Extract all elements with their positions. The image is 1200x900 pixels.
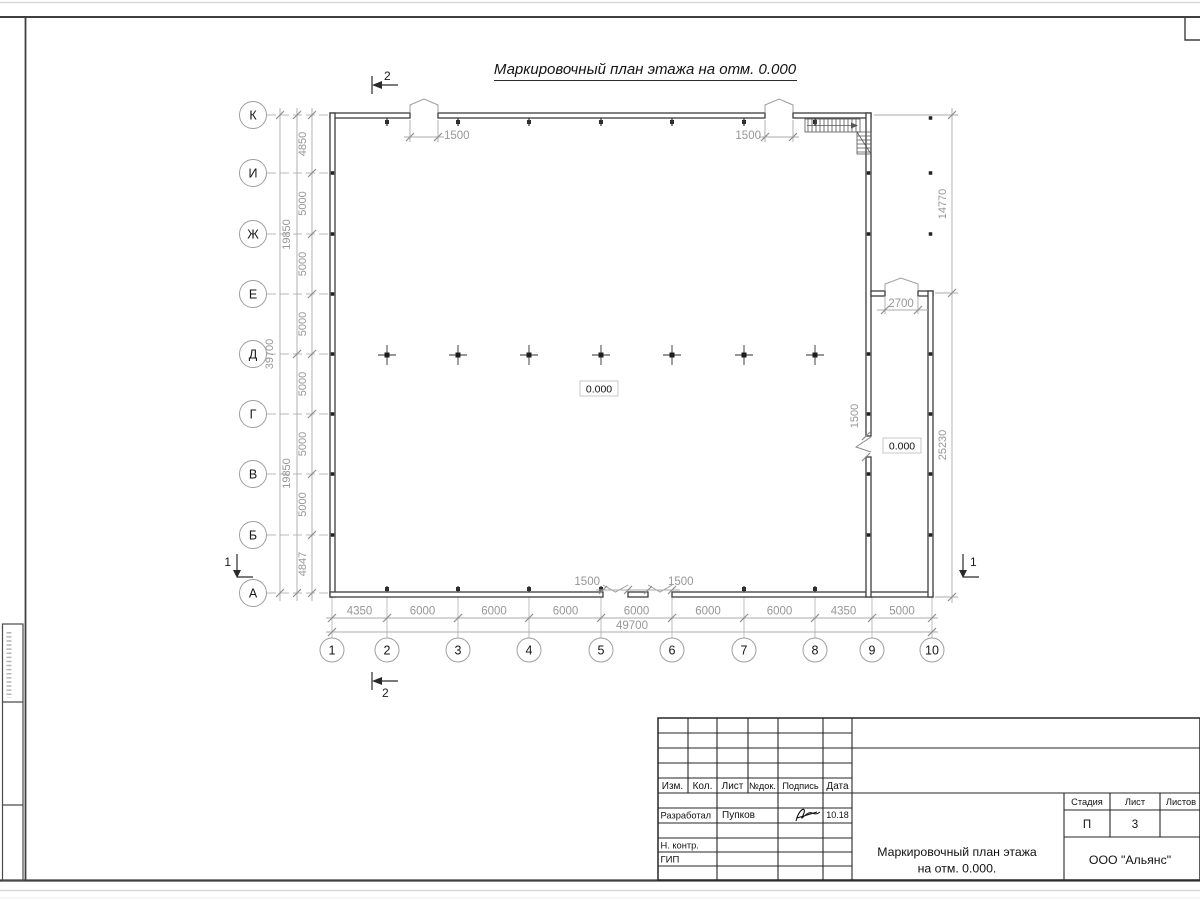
gate-symbol-top-right (765, 99, 793, 112)
level-annex: 0.000 (889, 441, 915, 453)
floor-plan-drawing: Маркировочный план этажа на отм. 0.000 4… (0, 0, 1200, 900)
tb-col-data: Дата (826, 781, 849, 792)
dimension-chains (276, 108, 958, 636)
frame-side-column (3, 624, 24, 881)
walls (330, 113, 933, 597)
axis-row-2: Ж (247, 228, 259, 242)
wall-bottom-1 (330, 592, 603, 597)
frame-corner-box (1185, 17, 1200, 40)
drawing-sheet: Маркировочный план этажа на отм. 0.000 4… (0, 0, 1200, 900)
dim-right-bottom: 25230 (937, 430, 949, 461)
dim-bottom-8: 5000 (889, 606, 915, 618)
tb-gip-label: ГИП (661, 855, 680, 866)
axis-col-2: 3 (455, 644, 462, 658)
dim-left-2: 5000 (297, 252, 309, 276)
dim-gate-bottom-left: 1500 (574, 576, 600, 588)
section-2-bottom-label: 2 (382, 686, 389, 700)
interior-columns (378, 345, 824, 365)
gate-symbol-top-left (410, 99, 438, 112)
dim-left-mid-1: 19850 (281, 458, 293, 489)
tb-doc-title-1: Маркировочный план этажа (877, 845, 1037, 859)
dim-annex-gate: 2700 (888, 298, 914, 310)
dim-bottom-3: 6000 (553, 606, 579, 618)
wall-bottom-3 (672, 592, 933, 597)
dim-left-7: 4847 (297, 552, 309, 576)
tb-col-kol: Кол. (693, 781, 713, 792)
section-1-right-label: 1 (970, 555, 977, 569)
wall-top-3 (793, 113, 871, 118)
dim-bottom-7: 4350 (831, 606, 857, 618)
page-title: Маркировочный план этажа на отм. 0.000 (494, 61, 797, 78)
dim-bottom-0: 4350 (347, 606, 373, 618)
dim-bottom-5: 6000 (695, 606, 721, 618)
wall-top-1 (330, 113, 410, 118)
tb-developed-date: 10.18 (826, 810, 849, 820)
axis-bubbles-bottom: 1 2 3 4 5 6 7 8 9 10 (320, 638, 944, 662)
axis-row-0: К (249, 109, 257, 123)
dim-gate-top-left: 1500 (444, 130, 470, 142)
wall-top-2 (438, 113, 765, 118)
axis-bubbles-left: К И Ж Е Д Г В Б А (240, 102, 267, 607)
dim-left-1: 5000 (297, 191, 309, 215)
dim-texts-right: 14770 25230 (937, 189, 949, 461)
dim-left-6: 5000 (297, 492, 309, 516)
tb-developed-label: Разработал (661, 811, 712, 821)
tb-company: ООО "Альянс" (1089, 853, 1171, 867)
axis-col-0: 1 (329, 644, 336, 658)
tb-col-ndok: №док. (749, 781, 776, 791)
dim-right-top: 14770 (937, 189, 949, 220)
wall-column-marks (333, 116, 931, 592)
dimension-ticks (276, 111, 956, 636)
axis-row-8: А (249, 587, 258, 601)
dim-left-4: 5000 (297, 372, 309, 396)
dim-left-0: 4850 (297, 132, 309, 156)
axis-col-5: 6 (669, 644, 676, 658)
title-block: Изм. Кол. Лист №док. Подпись Дата Разраб… (658, 718, 1200, 880)
axis-row-5: Г (250, 408, 257, 422)
axis-col-8: 9 (869, 644, 876, 658)
level-main: 0.000 (586, 384, 612, 396)
tb-sheet-label: Лист (1125, 797, 1146, 807)
dim-bottom-total: 49700 (616, 620, 648, 632)
axis-col-9: 10 (925, 644, 939, 658)
wall-annex-right (928, 291, 933, 597)
stair-direction-arrow (851, 123, 858, 129)
tb-sheet-value: 3 (1132, 819, 1138, 831)
tb-sheets-label: Листов (1166, 797, 1196, 807)
section-1-left-arrow (237, 554, 253, 577)
dim-gate-top-right: 1500 (735, 130, 761, 142)
dim-left-5: 5000 (297, 432, 309, 456)
dim-bottom-4: 6000 (624, 606, 650, 618)
plan-title: Маркировочный план этажа на отм. 0.000 (494, 61, 797, 81)
dim-texts-bottom: 4350 6000 6000 6000 6000 6000 6000 4350 … (347, 606, 915, 633)
axis-row-1: И (249, 167, 258, 181)
wall-right-main-1 (866, 113, 871, 436)
axis-col-7: 8 (812, 644, 819, 658)
dim-annex-door: 1500 (849, 404, 861, 428)
axis-row-7: Б (249, 529, 257, 543)
tb-stage-value: П (1083, 819, 1091, 831)
tb-ncontr-label: Н. контр. (661, 841, 699, 851)
tb-col-podpis: Подпись (782, 781, 819, 791)
axis-col-6: 7 (741, 644, 748, 658)
tb-developed-name: Пупков (722, 810, 755, 821)
axis-col-1: 2 (384, 644, 391, 658)
dim-bottom-1: 6000 (410, 606, 436, 618)
tb-doc-title-2: на отм. 0.000. (918, 862, 997, 876)
tb-stage-label: Стадия (1071, 797, 1103, 807)
dim-bottom-2: 6000 (481, 606, 507, 618)
tb-col-list: Лист (722, 781, 744, 792)
axis-row-4: Д (249, 348, 258, 362)
axis-col-4: 5 (598, 644, 605, 658)
axis-lines (267, 115, 932, 638)
section-1-left-label: 1 (224, 555, 231, 569)
axis-row-6: В (249, 468, 257, 482)
wall-annex-top-1 (871, 291, 885, 296)
section-2-top-label: 2 (384, 69, 391, 83)
dim-left-3: 5000 (297, 312, 309, 336)
tb-col-izm: Изм. (662, 781, 683, 792)
axis-col-3: 4 (526, 644, 533, 658)
dim-gate-bottom-right: 1500 (668, 576, 694, 588)
wall-right-main-2 (866, 457, 871, 597)
dim-bottom-6: 6000 (767, 606, 793, 618)
axis-row-3: Е (249, 288, 257, 302)
dim-left-mid-0: 19850 (281, 219, 293, 250)
